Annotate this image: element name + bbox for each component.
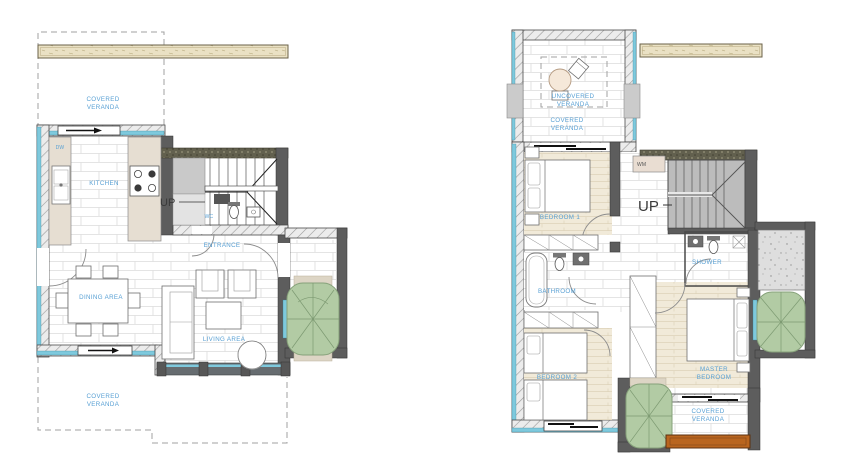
label-bedroom2: BEDROOM 2	[537, 374, 577, 381]
label-shower: SHOWER	[692, 259, 722, 266]
wc-toilet	[230, 206, 239, 219]
window-strip	[512, 144, 516, 430]
wood-railing	[666, 435, 750, 448]
dining-table	[68, 279, 128, 323]
shower-toilet-tank	[707, 236, 720, 241]
label-wc: WC	[205, 214, 214, 220]
first-floor-plan: WM	[507, 30, 815, 452]
label-covered-veranda-top: COVERED	[550, 117, 583, 124]
bathroom-toilet-tank	[553, 253, 566, 258]
pilaster	[624, 84, 640, 118]
window-strip	[37, 127, 41, 355]
bay-window-band	[157, 362, 290, 376]
window-strip	[120, 131, 164, 135]
label-covered-veranda-bottom: COVERED	[691, 408, 724, 415]
bedroom1-wardrobe	[524, 235, 598, 250]
kitchen-counter-left	[49, 137, 71, 245]
label-master-bedroom-2: BEDROOM	[697, 374, 731, 381]
floor-plans-drawing: COVERED VERANDA DW KITCHEN UP WC ENTRANC…	[0, 0, 845, 476]
bedroom2-bed	[524, 333, 587, 373]
dining-chair	[103, 324, 118, 336]
nightstand	[525, 147, 539, 158]
stairwell	[668, 160, 745, 230]
label-master-bedroom: MASTER	[700, 366, 728, 373]
wc-door-opening	[192, 226, 212, 234]
sofa	[162, 286, 194, 359]
label-uncovered-veranda: UNCOVERED	[552, 93, 595, 100]
label-bedroom1: BEDROOM 1	[540, 214, 580, 221]
window-strip	[283, 300, 287, 338]
lounge-chair	[238, 341, 266, 369]
nightstand	[737, 288, 750, 297]
veranda-round-table	[549, 69, 571, 91]
wall-bedroom1-right	[610, 142, 620, 216]
label-living-area: LIVING AREA	[203, 336, 246, 343]
wall-stairs-right	[745, 150, 757, 232]
wall-balcony-right	[805, 222, 815, 358]
label-covered-veranda-bottom-2: VERANDA	[692, 416, 725, 423]
armchair	[196, 270, 224, 298]
wall-stairs-bottom	[668, 228, 755, 234]
window-strip	[753, 300, 757, 340]
label-up-ground: UP	[160, 197, 175, 209]
label-wm: WM	[637, 162, 646, 168]
label-kitchen: KITCHEN	[89, 180, 119, 187]
label-covered-veranda-bottom: COVERED	[86, 393, 119, 400]
label-covered-veranda-bottom-2: VERANDA	[87, 401, 120, 408]
nightstand	[737, 363, 750, 372]
wall-veranda-top	[512, 30, 636, 40]
wall-stairs-right	[276, 148, 288, 235]
shower-toilet	[709, 241, 718, 254]
veranda-tree	[626, 378, 672, 448]
bathroom-toilet	[555, 258, 564, 271]
wall-wc-bottom	[173, 225, 288, 235]
balcony-concrete-floor	[758, 230, 805, 290]
label-entrance: ENTRANCE	[204, 242, 241, 249]
entrance-door-opening	[278, 243, 290, 277]
nightstand	[525, 214, 539, 225]
master-veranda-slider	[678, 395, 740, 401]
porch-tree	[287, 283, 339, 355]
bedroom2-window	[544, 421, 602, 431]
dining-chair	[56, 293, 68, 308]
wc-basin	[247, 207, 260, 217]
label-bathroom: BATHROOM	[538, 288, 576, 295]
kitchen-counter-right	[128, 137, 161, 241]
label-covered-veranda-top: COVERED	[86, 96, 119, 103]
bedroom2-wardrobe	[524, 312, 598, 328]
armchair	[228, 270, 256, 298]
label-dining-area: DINING AREA	[79, 294, 123, 301]
dining-chair	[76, 324, 91, 336]
dining-chair	[76, 266, 91, 278]
master-bed	[687, 288, 750, 372]
wall-stairs-top	[161, 148, 288, 158]
pergola-beam	[38, 45, 288, 58]
label-dw: DW	[56, 145, 65, 151]
label-uncovered-veranda-2: VERANDA	[557, 101, 590, 108]
label-covered-veranda-top-2: VERANDA	[87, 104, 120, 111]
label-covered-veranda-top-2: VERANDA	[551, 125, 584, 132]
wall-bedroom1-right-stub	[610, 242, 620, 252]
porch-floor	[288, 240, 336, 282]
dining-door-opening	[37, 248, 49, 286]
living-window	[78, 346, 132, 355]
balcony-tree	[757, 292, 805, 352]
dining-chair	[128, 293, 140, 308]
coffee-table	[206, 302, 241, 329]
floor-plans-canvas: COVERED VERANDA DW KITCHEN UP WC ENTRANC…	[0, 0, 845, 476]
pilaster	[507, 84, 523, 118]
pergola-beam	[640, 44, 762, 57]
kitchen-window	[58, 126, 120, 135]
washing-machine: WM	[633, 156, 665, 172]
hall-wardrobe	[630, 276, 656, 378]
stove	[130, 166, 159, 196]
dining-chair	[103, 266, 118, 278]
bedroom2-bed	[524, 380, 587, 420]
label-up-first: UP	[638, 198, 659, 215]
ground-floor-plan: COVERED VERANDA DW KITCHEN UP WC ENTRANC…	[37, 32, 347, 443]
